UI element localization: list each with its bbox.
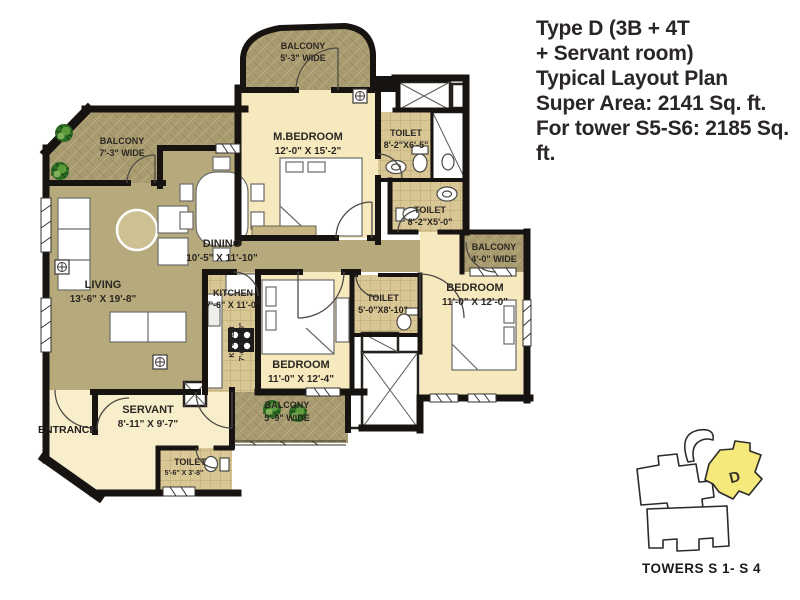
window — [430, 394, 458, 402]
dining-chair — [251, 184, 264, 201]
coffee-table — [117, 210, 157, 250]
window — [41, 298, 51, 352]
dims-kitchen-platform: 7'-6"X11'-0" — [239, 323, 246, 361]
label-living: LIVING — [85, 279, 122, 291]
label-toilet-common: TOILET — [414, 205, 446, 215]
dining-chair — [180, 212, 193, 229]
window — [216, 144, 240, 153]
title-line: Super Area: 2141 Sq. ft. — [536, 91, 796, 116]
tv-unit — [336, 298, 349, 342]
dining-chair — [180, 184, 193, 201]
label-dining: DINING — [203, 238, 242, 250]
title-line: Typical Layout Plan — [536, 66, 796, 91]
dims-bedroom-right: 11'-0" X 12'-0" — [442, 297, 508, 308]
side-table — [158, 238, 188, 265]
label-kitchen-platform: KITCHEN — [229, 326, 236, 357]
key-plan: D TOWERS S 1- S 4 — [637, 430, 762, 576]
window — [163, 487, 195, 496]
label-kitchen: KITCHEN — [213, 288, 253, 298]
label-servant: SERVANT — [122, 404, 174, 416]
label-balcony-top: BALCONY — [281, 41, 326, 51]
dims-bedroom-middle: 11'-0" X 12'-4" — [268, 374, 334, 385]
label-balcony-bottom: BALCONY — [265, 400, 310, 410]
sofa — [58, 198, 90, 290]
dims-kitchen: 7'-6" X 11'-0" — [206, 300, 260, 310]
dims-balcony-left: 7'-3" WIDE — [99, 148, 144, 158]
dims-toilet-middle: 5'-0"X8'-10" — [358, 305, 408, 315]
label-master-bedroom: M.BEDROOM — [273, 131, 343, 143]
dims-toilet-common: 8'-2"X5'-0" — [408, 217, 453, 227]
label-entrance: ENTRANCE — [38, 424, 96, 436]
label-bedroom-right: BEDROOM — [446, 282, 503, 294]
duct-top-right — [452, 84, 464, 108]
label-balcony-left: BALCONY — [100, 136, 145, 146]
dims-master-bedroom: 12'-0" X 15'-2" — [275, 146, 342, 157]
title-line: Type D (3B + 4T — [536, 16, 796, 41]
label-toilet-servant: TOILET — [174, 457, 206, 467]
page: BALCONY 5'-3" WIDE M.BEDROOM 12'-0" X 15… — [0, 0, 800, 600]
dims-balcony-bottom: 5'-9" WIDE — [264, 413, 309, 423]
dims-toilet-master: 8'-2"X6'-5" — [384, 140, 429, 150]
label-toilet-master: TOILET — [390, 128, 422, 138]
window — [468, 394, 496, 402]
dims-balcony-top: 5'-3" WIDE — [280, 53, 325, 63]
title-line: + Servant room) — [536, 41, 796, 66]
balcony-right-floor — [462, 232, 527, 272]
dims-servant: 8'-11" X 9'-7" — [118, 419, 179, 430]
dims-living: 13'-6" X 19'-8" — [70, 294, 137, 305]
title-block: Type D (3B + 4T + Servant room) Typical … — [536, 16, 796, 166]
keyplan-wing — [637, 454, 714, 512]
window — [523, 300, 531, 346]
label-toilet-middle: TOILET — [367, 293, 399, 303]
keyplan-hook — [685, 430, 713, 462]
window — [306, 388, 340, 396]
keyplan-caption: TOWERS S 1- S 4 — [642, 561, 761, 576]
title-line: For tower S5-S6: 2185 Sq. ft. — [536, 116, 796, 166]
dims-toilet-servant: 5'-6" X 3'-8" — [165, 470, 204, 477]
dining-chair — [213, 157, 230, 170]
label-balcony-right: BALCONY — [472, 242, 517, 252]
keyplan-base — [647, 506, 729, 551]
dims-balcony-right: 4'-0" WIDE — [471, 254, 516, 264]
window — [41, 198, 51, 252]
dims-dining: 10'-5" X 11'-10" — [186, 253, 258, 264]
label-bedroom-middle: BEDROOM — [272, 359, 329, 371]
